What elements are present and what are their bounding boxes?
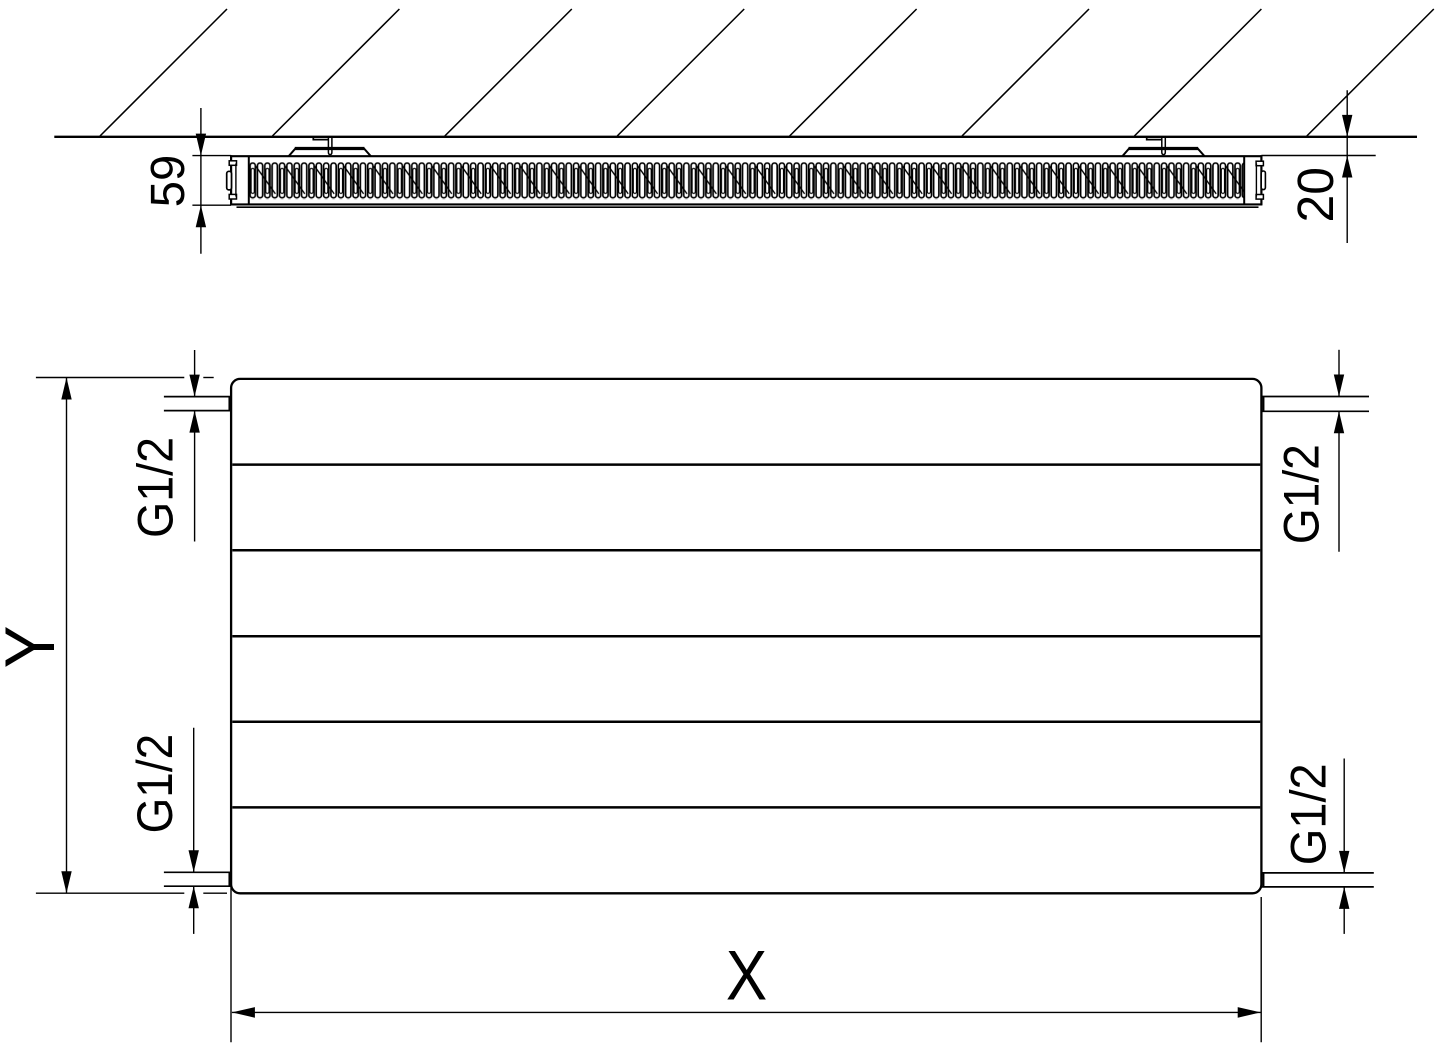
- svg-text:20: 20: [1287, 167, 1344, 222]
- svg-text:59: 59: [141, 155, 195, 208]
- svg-text:G1/2: G1/2: [1280, 763, 1337, 865]
- svg-text:X: X: [726, 935, 767, 1014]
- svg-text:G1/2: G1/2: [127, 437, 184, 538]
- svg-text:Y: Y: [0, 626, 69, 669]
- svg-text:G1/2: G1/2: [126, 734, 183, 834]
- svg-text:G1/2: G1/2: [1272, 444, 1329, 544]
